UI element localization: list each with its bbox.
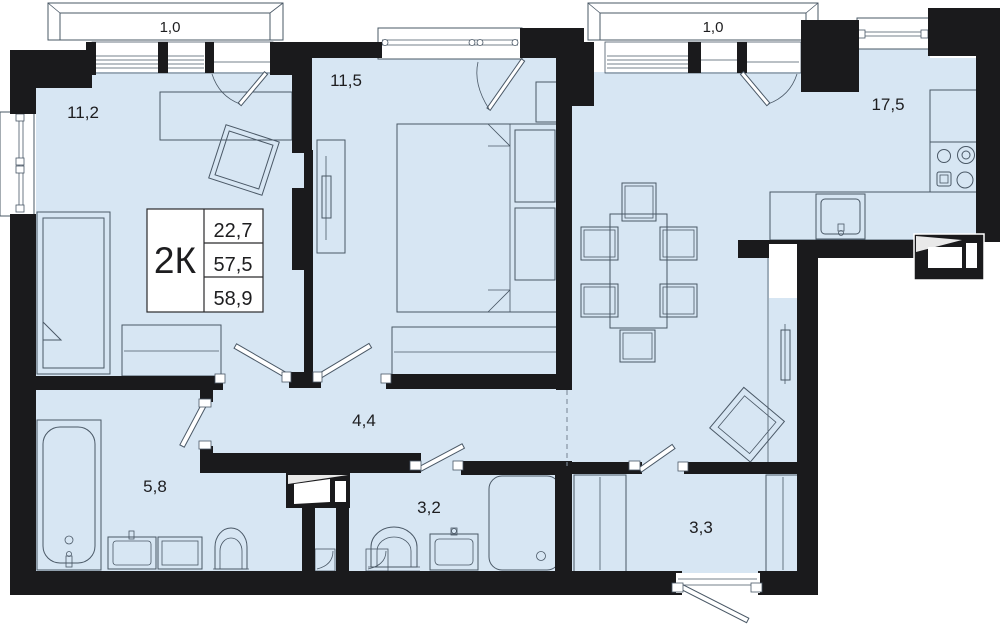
apartment-type-label: 2К — [154, 240, 197, 281]
area-value-3: 58,9 — [214, 288, 253, 310]
floor-plan-page: 2К 22,7 57,5 58,9 1,0 1,0 11,2 11,5 17,5… — [0, 0, 1000, 625]
window-left-wall — [0, 112, 34, 216]
hall-4-4-label: 4,4 — [352, 411, 376, 430]
balcony-right-label: 1,0 — [703, 19, 724, 36]
floor-plan: 2К 22,7 57,5 58,9 1,0 1,0 11,2 11,5 17,5… — [0, 0, 1000, 625]
wc-3-2-label: 3,2 — [417, 498, 441, 517]
info-box: 2К 22,7 57,5 58,9 — [147, 209, 263, 312]
room-11-5-floor — [310, 55, 562, 377]
area-value-1: 22,7 — [214, 220, 253, 242]
window-band-room-11-2 — [92, 42, 273, 73]
window-room-11-5 — [378, 28, 522, 59]
area-value-2: 57,5 — [214, 254, 253, 276]
window-kitchen-top — [857, 18, 929, 49]
window-band-kitchen — [605, 42, 801, 73]
room-17-5-label: 17,5 — [871, 95, 904, 114]
wc-niche-floor — [313, 505, 338, 573]
hall-3-3-floor — [570, 472, 802, 575]
bath-5-8-label: 5,8 — [143, 477, 167, 496]
wc-floor — [348, 473, 560, 575]
hall-3-3-label: 3,3 — [689, 518, 713, 537]
room-11-2-label: 11,2 — [67, 103, 99, 122]
niche-white-block — [769, 244, 797, 298]
room-11-5-label: 11,5 — [330, 71, 362, 90]
entry-door — [676, 573, 760, 623]
balcony-left-label: 1,0 — [160, 19, 181, 36]
